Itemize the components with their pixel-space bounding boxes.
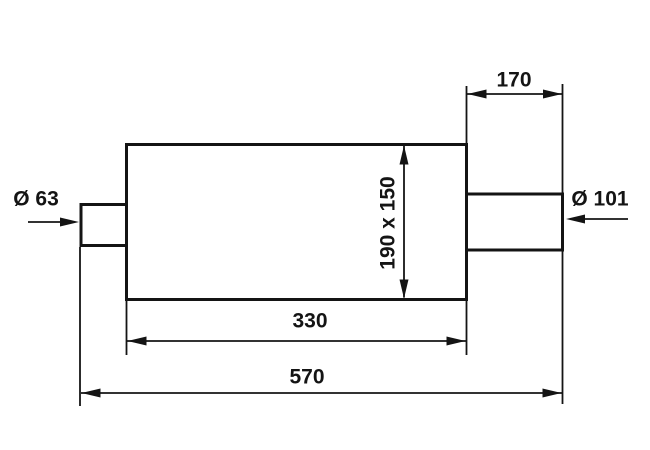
outlet-pipe-outline: [467, 194, 563, 250]
arrowhead-down-icon: [400, 280, 409, 299]
inlet-pipe-outline: [81, 205, 127, 246]
technical-drawing: 170 190 x 150 330 570 Ø 63 Ø 101: [0, 0, 650, 450]
dimension-label-570: 570: [289, 367, 324, 388]
dimension-label-190x150: 190 x 150: [378, 176, 399, 269]
dimension-label-outlet-diameter: Ø 101: [571, 189, 628, 210]
dimension-330: [127, 337, 466, 346]
dimension-label-170: 170: [496, 70, 531, 91]
arrowhead-left-icon: [128, 337, 147, 346]
dimension-label-inlet-diameter: Ø 63: [13, 189, 59, 210]
dimension-570: [81, 389, 562, 398]
muffler-body-outline: [127, 145, 467, 300]
arrowhead-left-icon: [566, 215, 585, 224]
arrowhead-left-icon: [82, 389, 101, 398]
dimension-label-330: 330: [292, 311, 327, 332]
arrowhead-up-icon: [400, 146, 409, 165]
arrowhead-right-icon: [543, 389, 562, 398]
arrowhead-right-icon: [447, 337, 466, 346]
outlet-flow-arrow: [566, 215, 628, 224]
arrowhead-right-icon: [543, 90, 562, 99]
drawing-linework: [0, 0, 650, 450]
inlet-flow-arrow: [28, 218, 79, 227]
dimension-190x150: [400, 146, 409, 299]
arrowhead-right-icon: [60, 218, 79, 227]
arrowhead-left-icon: [468, 90, 487, 99]
extension-lines: [80, 84, 563, 406]
